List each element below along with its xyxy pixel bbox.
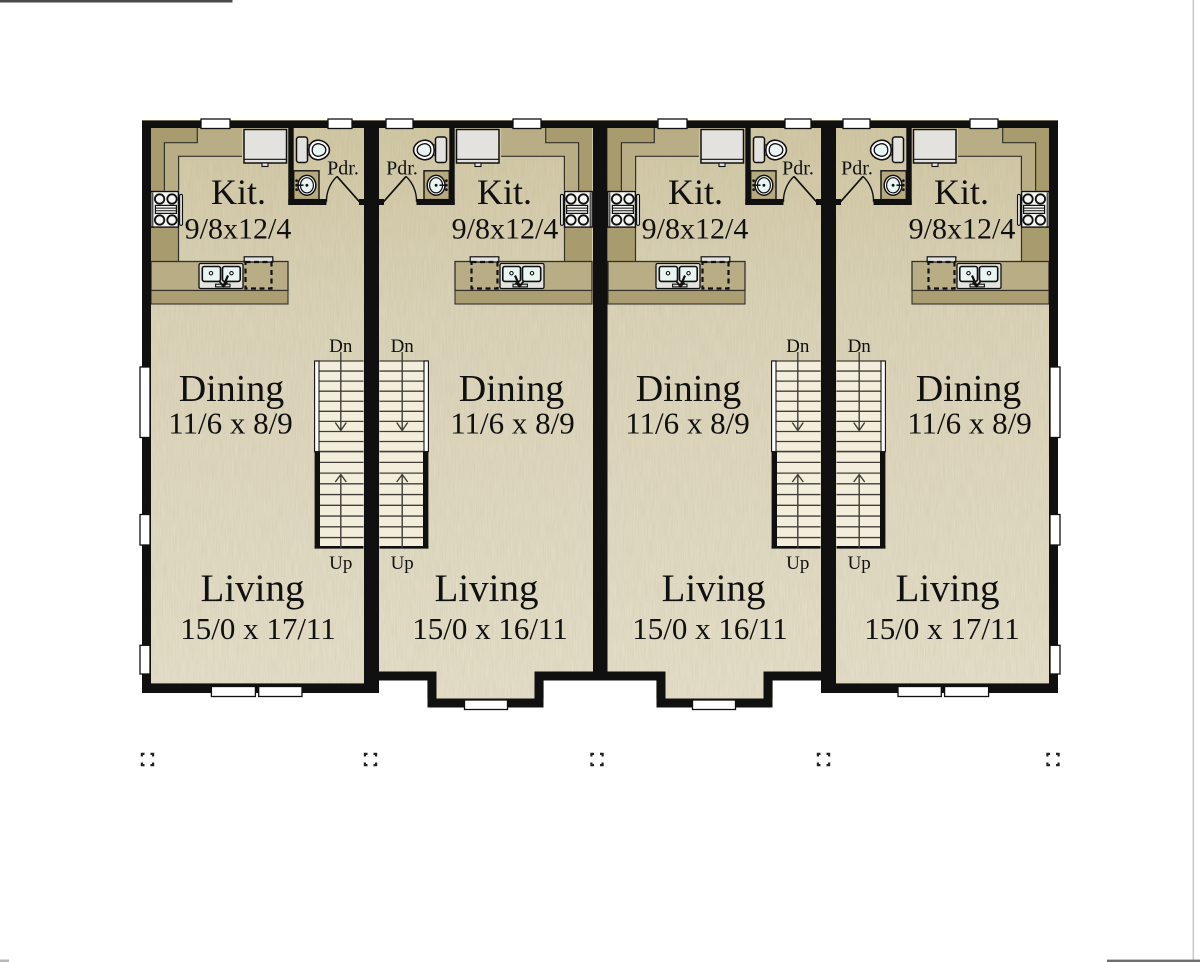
svg-text:15/0 x 16/11: 15/0 x 16/11 bbox=[412, 611, 568, 646]
svg-text:11/6 x 8/9: 11/6 x 8/9 bbox=[450, 406, 575, 441]
svg-text:Pdr.: Pdr. bbox=[327, 158, 359, 180]
svg-text:Dining: Dining bbox=[916, 368, 1022, 410]
svg-text:Pdr.: Pdr. bbox=[782, 158, 814, 180]
svg-text:Dining: Dining bbox=[459, 368, 565, 410]
svg-text:Dn: Dn bbox=[391, 336, 415, 357]
svg-text:Kit.: Kit. bbox=[477, 172, 532, 212]
svg-text:Living: Living bbox=[896, 567, 1000, 610]
svg-text:11/6 x 8/9: 11/6 x 8/9 bbox=[907, 406, 1032, 441]
svg-text:Living: Living bbox=[662, 567, 766, 610]
svg-text:Kit.: Kit. bbox=[211, 172, 266, 212]
svg-text:Dn: Dn bbox=[848, 336, 872, 357]
svg-text:11/6 x 8/9: 11/6 x 8/9 bbox=[625, 406, 750, 441]
svg-text:11/6 x 8/9: 11/6 x 8/9 bbox=[168, 406, 293, 441]
svg-text:9/8x12/4: 9/8x12/4 bbox=[185, 213, 292, 246]
svg-text:9/8x12/4: 9/8x12/4 bbox=[452, 213, 559, 246]
svg-text:Living: Living bbox=[435, 567, 539, 610]
svg-text:Up: Up bbox=[848, 553, 871, 574]
svg-text:Up: Up bbox=[329, 553, 352, 574]
svg-text:Up: Up bbox=[786, 553, 809, 574]
svg-text:9/8x12/4: 9/8x12/4 bbox=[909, 213, 1016, 246]
svg-text:Living: Living bbox=[201, 567, 305, 610]
svg-text:Pdr.: Pdr. bbox=[386, 158, 418, 180]
svg-text:Pdr.: Pdr. bbox=[841, 158, 873, 180]
svg-text:Kit.: Kit. bbox=[934, 172, 989, 212]
svg-text:15/0 x 17/11: 15/0 x 17/11 bbox=[180, 611, 336, 646]
svg-text:15/0 x 16/11: 15/0 x 16/11 bbox=[632, 611, 788, 646]
svg-text:Dn: Dn bbox=[786, 336, 810, 357]
svg-text:9/8x12/4: 9/8x12/4 bbox=[642, 213, 749, 246]
svg-text:15/0 x 17/11: 15/0 x 17/11 bbox=[864, 611, 1020, 646]
svg-text:Dining: Dining bbox=[179, 368, 285, 410]
svg-text:Up: Up bbox=[391, 553, 414, 574]
svg-text:Kit.: Kit. bbox=[668, 172, 723, 212]
svg-text:Dining: Dining bbox=[636, 368, 742, 410]
svg-text:Dn: Dn bbox=[329, 336, 353, 357]
